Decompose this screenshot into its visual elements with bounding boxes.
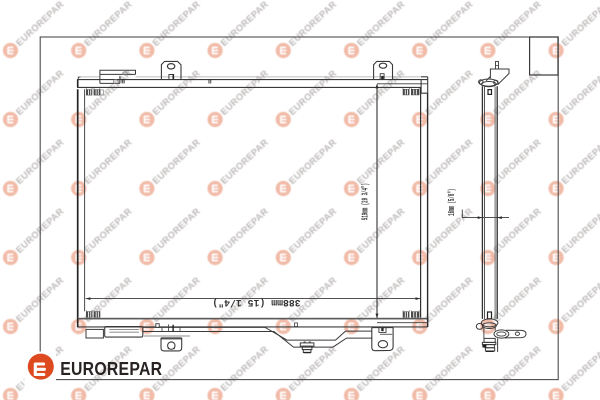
svg-text:16mm (5/8"): 16mm (5/8"): [448, 189, 458, 216]
svg-text:519mm (20 3/4"): 519mm (20 3/4"): [361, 183, 371, 220]
svg-text:EUROREPAR: EUROREPAR: [60, 358, 162, 380]
svg-text:388mm (15 1/4"): 388mm (15 1/4"): [212, 297, 300, 308]
